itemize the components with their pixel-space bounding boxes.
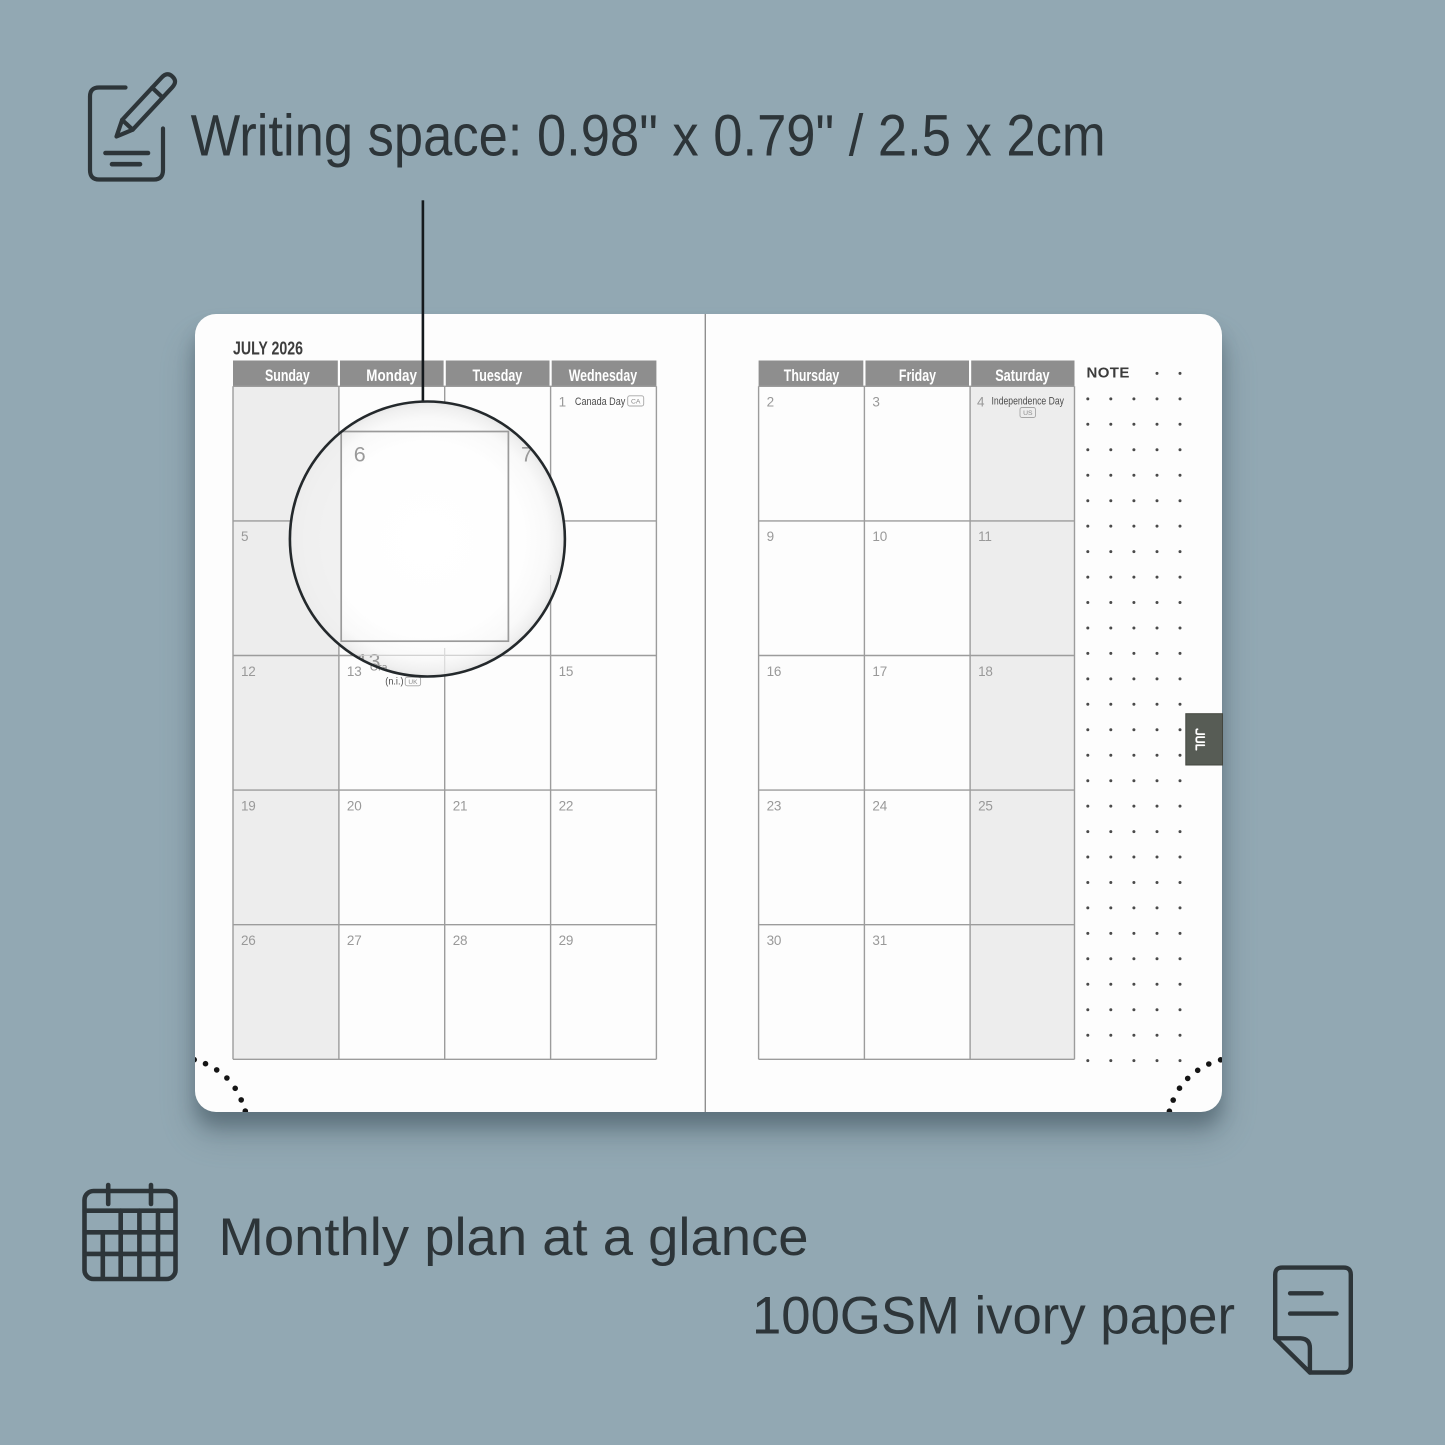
svg-text:20: 20 [347,798,362,813]
svg-text:21: 21 [453,798,468,813]
svg-text:31: 31 [872,933,887,948]
svg-text:30: 30 [767,933,782,948]
svg-text:Wednesday: Wednesday [569,366,638,385]
svg-text:3: 3 [872,395,879,410]
svg-text:25: 25 [978,798,993,813]
svg-text:27: 27 [347,933,362,948]
svg-text:26: 26 [241,933,256,948]
svg-text:11: 11 [978,529,992,544]
svg-text:6: 6 [354,443,366,467]
svg-text:28: 28 [453,933,468,948]
svg-text:Saturday: Saturday [995,366,1050,385]
svg-text:JULY 2026: JULY 2026 [233,338,303,359]
svg-text:Monthly plan at a glance: Monthly plan at a glance [219,1208,809,1267]
svg-text:Tuesday: Tuesday [473,366,523,385]
svg-text:1: 1 [559,395,566,410]
svg-text:13: 13 [347,664,362,679]
svg-text:UK: UK [408,679,418,686]
svg-text:Canada Day: Canada Day [575,396,626,408]
svg-text:16: 16 [767,664,782,679]
svg-text:29: 29 [559,933,574,948]
svg-text:(n.i.): (n.i.) [385,676,403,688]
svg-text:CA: CA [631,399,641,406]
svg-text:Writing space: 0.98" x 0.79" /: Writing space: 0.98" x 0.79" / 2.5 x 2cm [191,104,1106,169]
svg-text:24: 24 [872,798,887,813]
svg-text:Friday: Friday [899,366,936,385]
svg-text:Independence Day: Independence Day [992,396,1065,408]
svg-text:100GSM ivory paper: 100GSM ivory paper [752,1286,1235,1345]
svg-text:17: 17 [872,664,887,679]
svg-text:4: 4 [977,394,985,409]
svg-text:18: 18 [978,664,993,679]
svg-text:19: 19 [241,798,256,813]
svg-text:9: 9 [767,529,774,544]
svg-text:23: 23 [767,798,782,813]
svg-text:2: 2 [767,395,774,410]
svg-text:22: 22 [559,798,574,813]
svg-text:Monday: Monday [366,366,417,385]
svg-text:NOTE: NOTE [1087,365,1130,382]
svg-text:US: US [1023,410,1033,417]
svg-text:5: 5 [241,529,248,544]
svg-text:10: 10 [872,529,887,544]
svg-text:12: 12 [241,664,256,679]
svg-text:Thursday: Thursday [784,366,840,385]
svg-text:15: 15 [559,664,574,679]
svg-text:Sunday: Sunday [265,366,310,385]
